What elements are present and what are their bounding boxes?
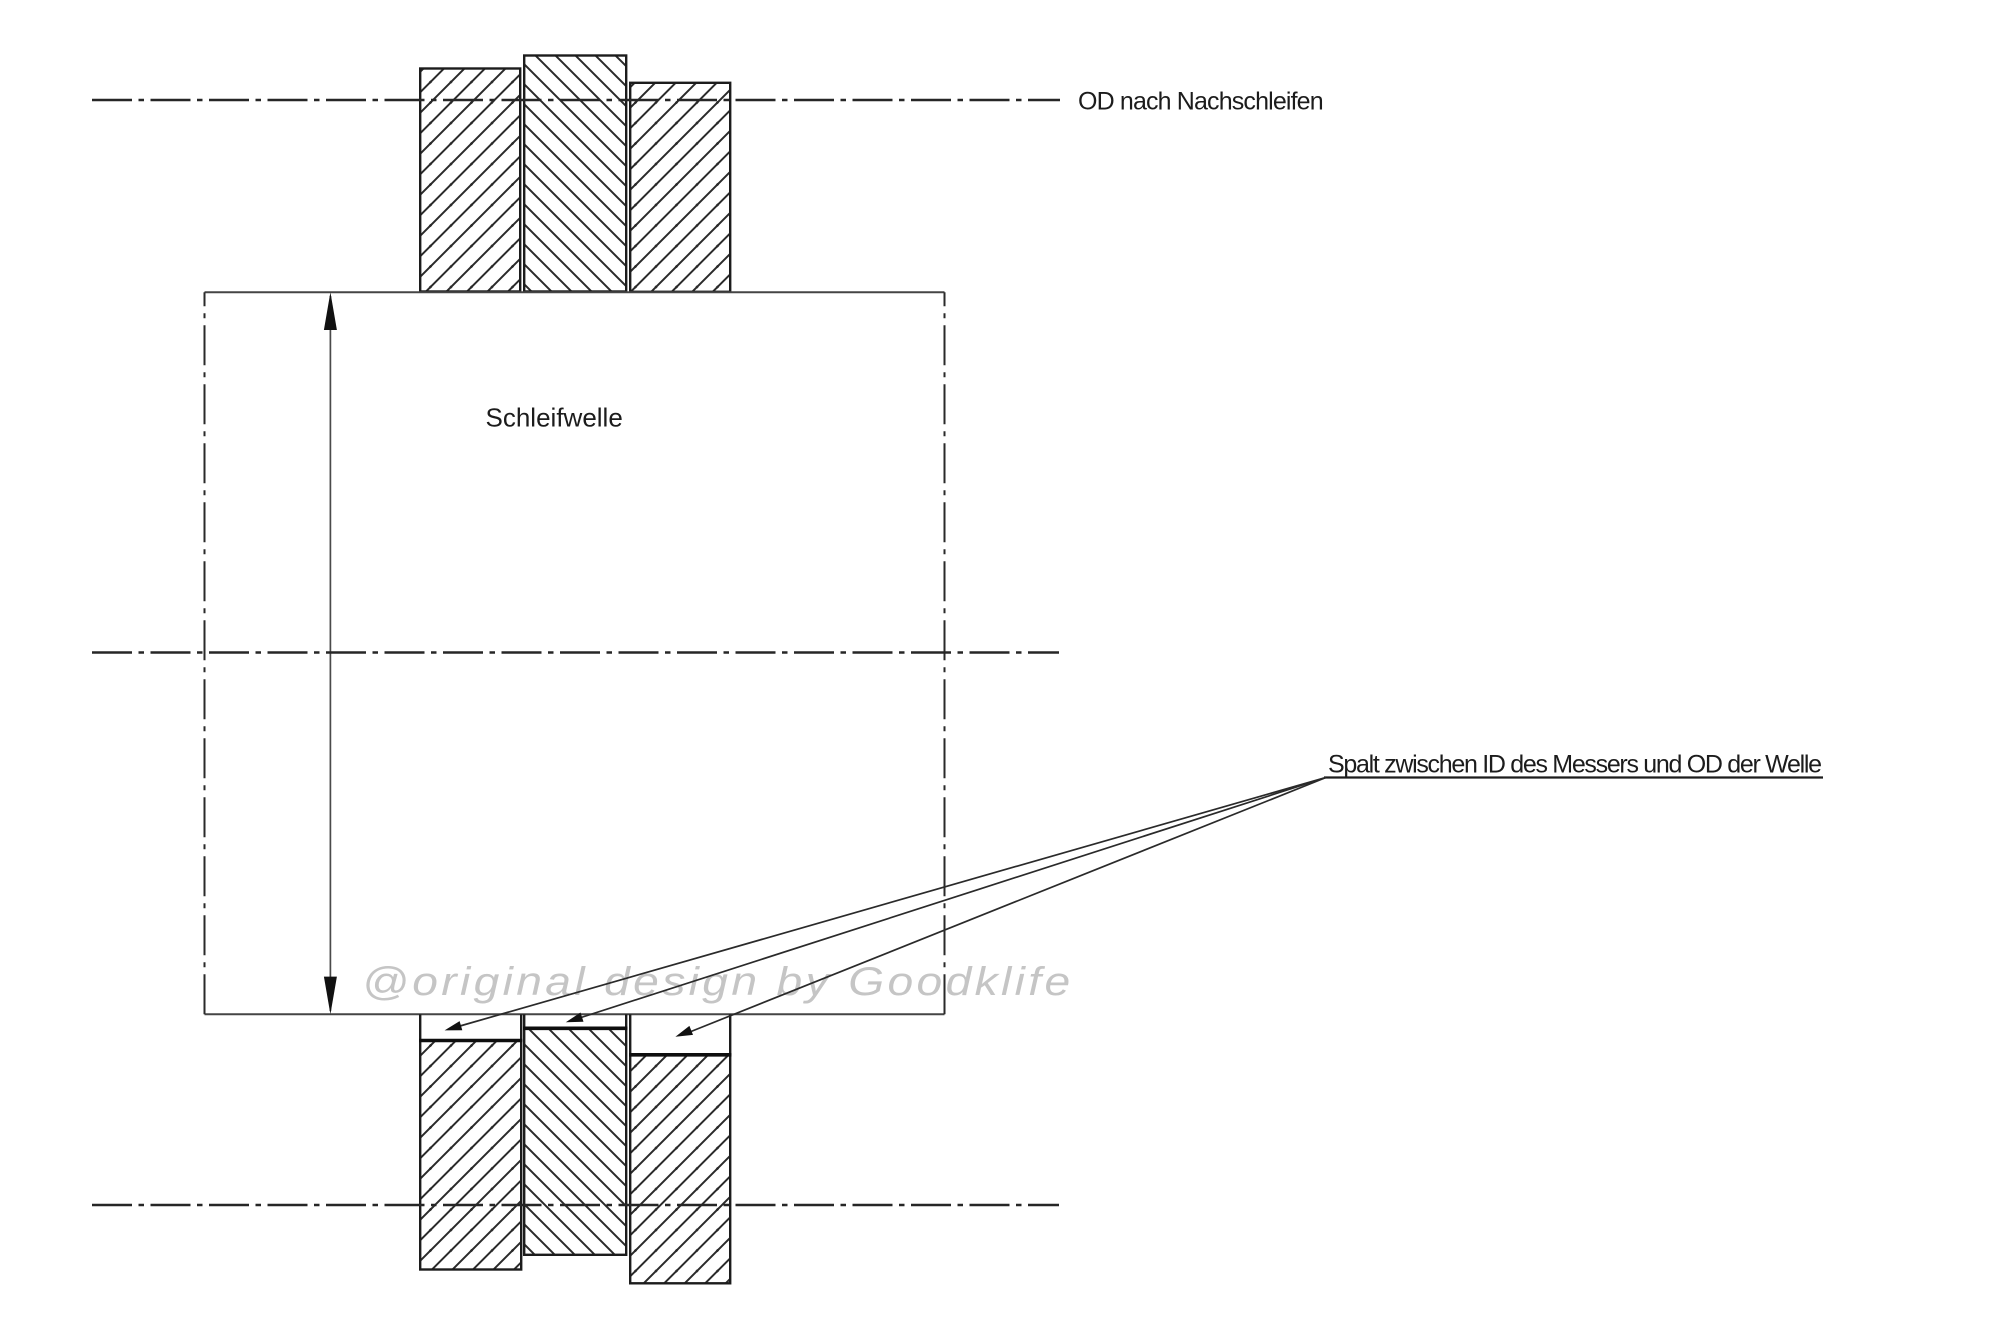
svg-text:Spalt zwischen ID des Messers: Spalt zwischen ID des Messers und OD der… <box>1328 751 1821 779</box>
svg-text:Schleifwelle: Schleifwelle <box>486 403 623 433</box>
svg-text:OD nach Nachschleifen: OD nach Nachschleifen <box>1078 88 1323 116</box>
svg-text:@original design by Goodklife: @original design by Goodklife <box>362 960 1073 1004</box>
